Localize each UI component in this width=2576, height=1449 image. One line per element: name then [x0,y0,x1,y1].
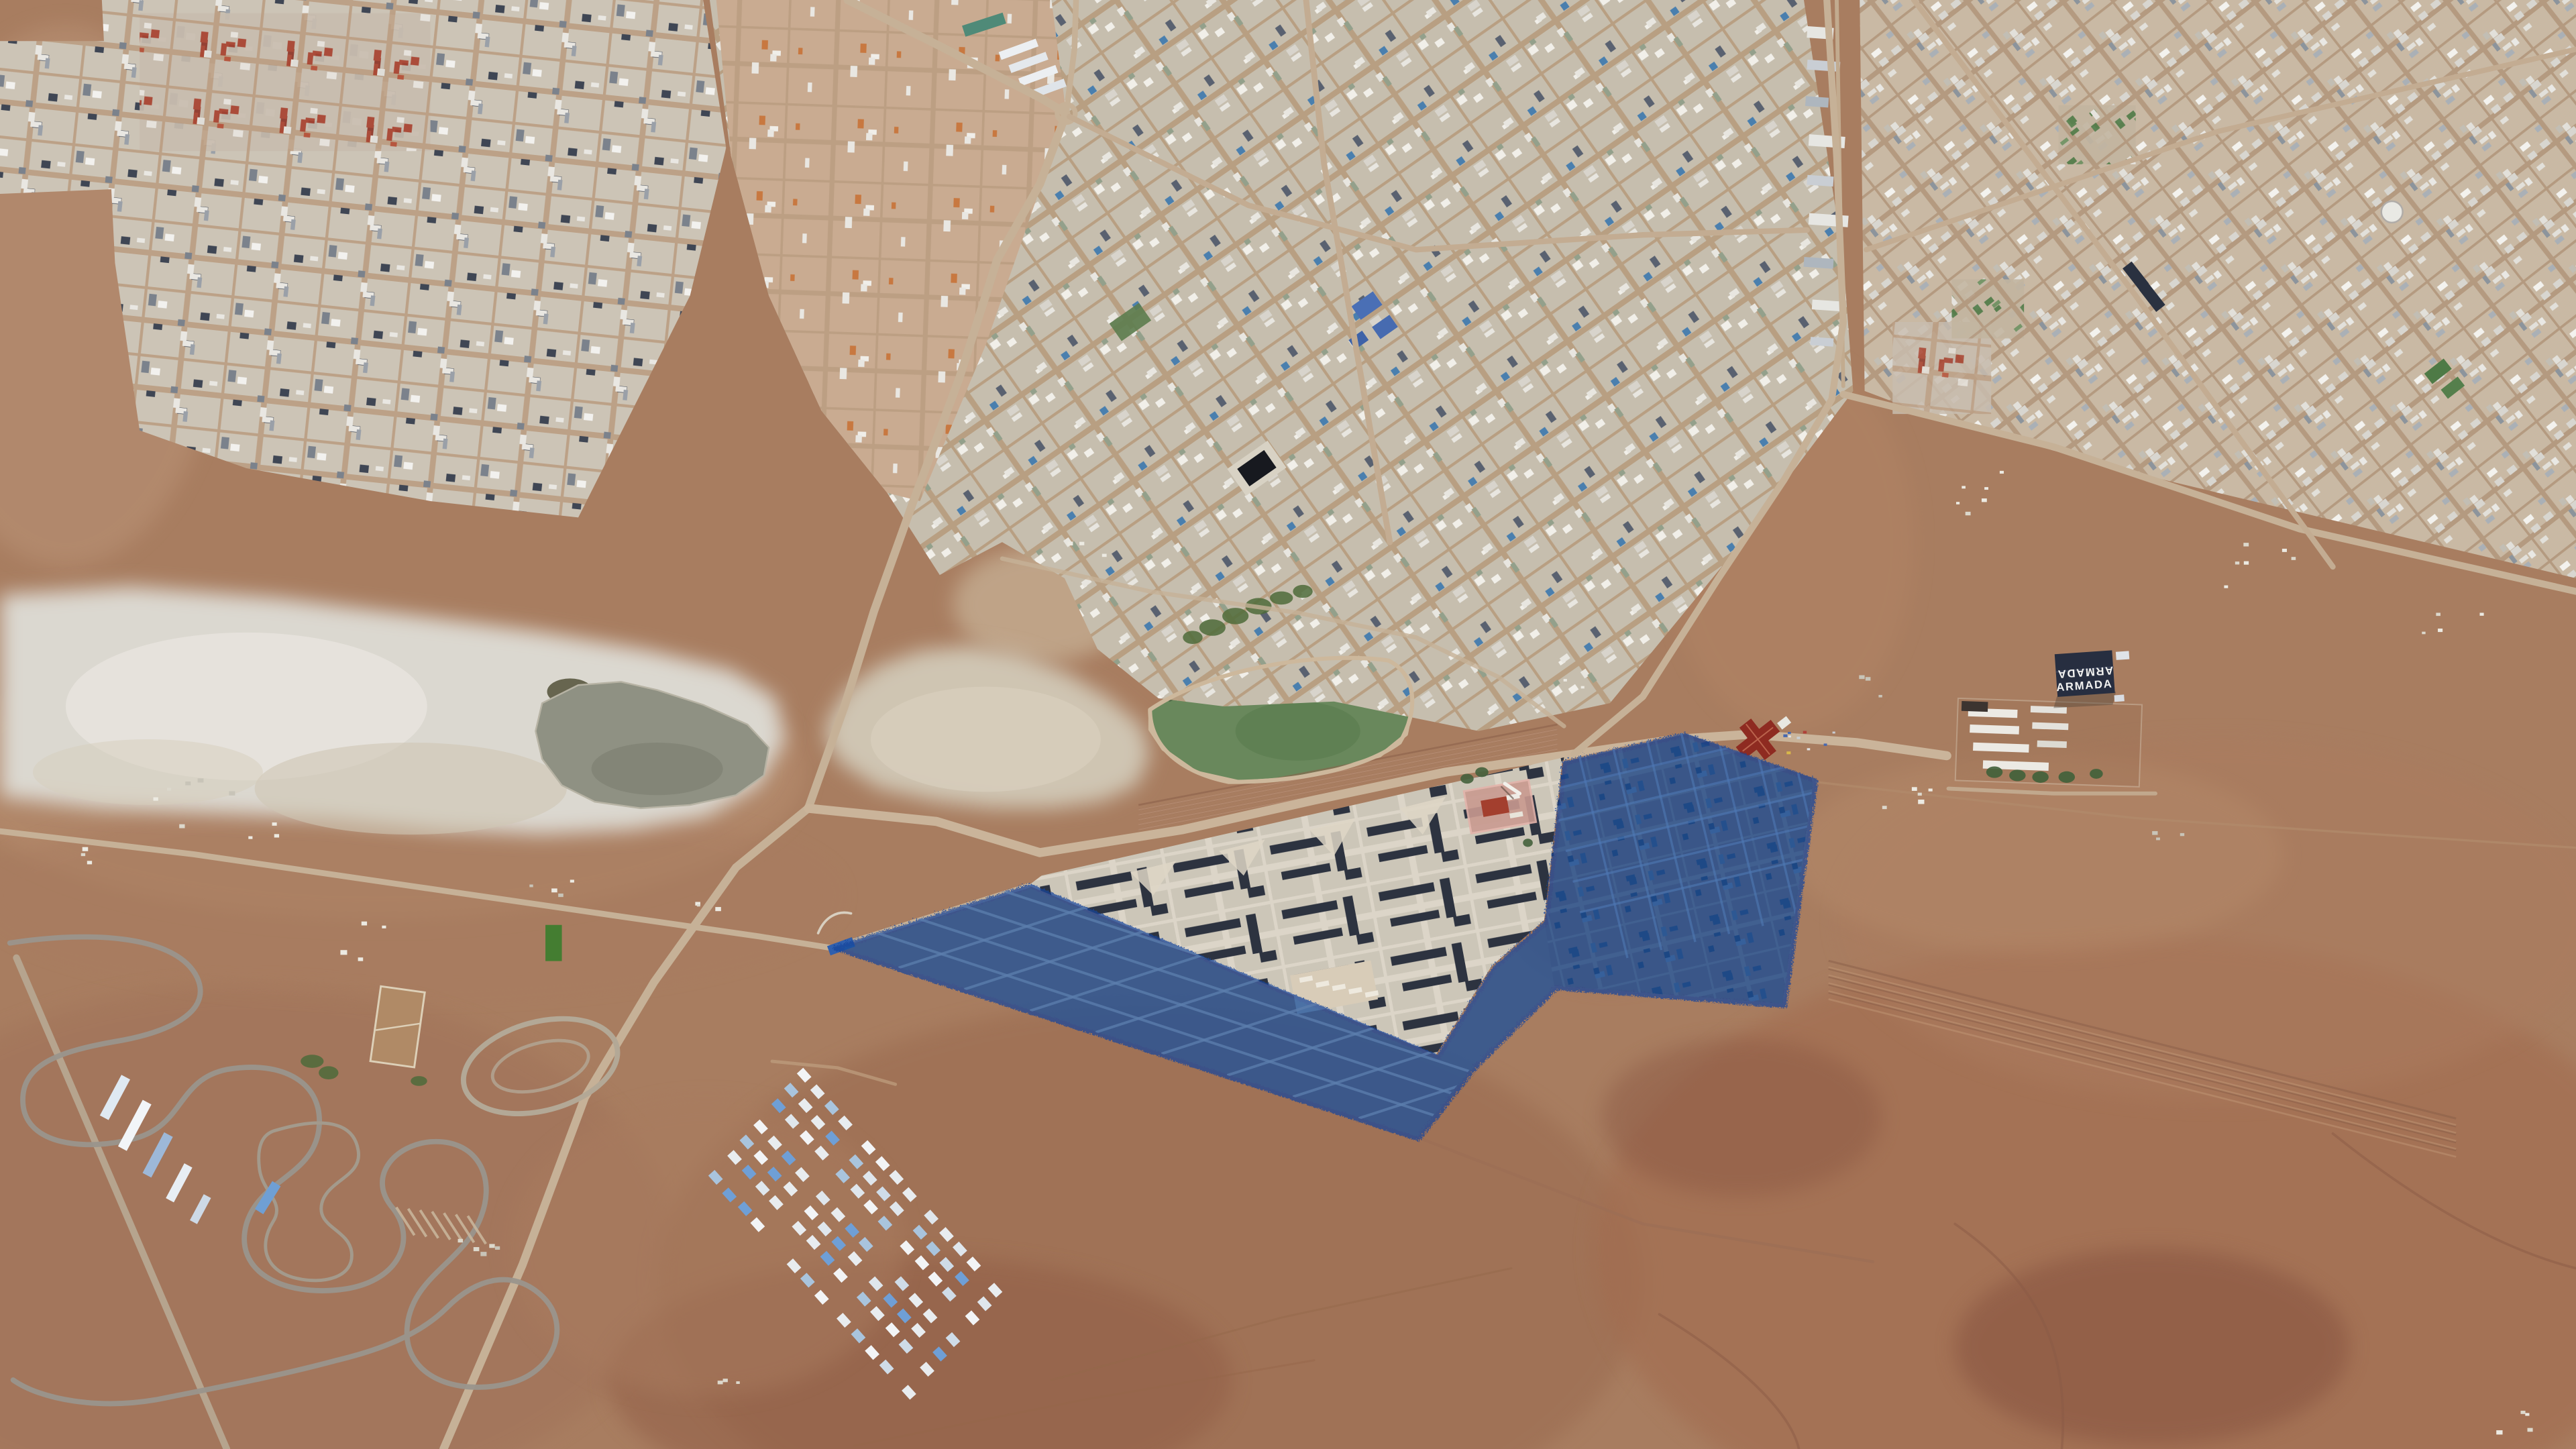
rect [2032,722,2068,731]
rect [1805,96,1829,107]
ell [411,1076,427,1086]
rect [1807,175,1833,186]
ell [1790,756,2284,953]
ell [255,743,567,835]
ell [871,687,1101,792]
ell [1602,1038,1881,1196]
satellite-image[interactable]: ARMADAARMADA [0,0,2576,1449]
water-tank [2381,201,2403,223]
ell [1183,631,1202,644]
rect [1970,724,2019,735]
satellite-map-stage: ARMADAARMADA [0,0,2576,1449]
ell [1222,608,1248,624]
dark-barn [1962,701,1988,712]
ell [2032,771,2048,783]
ell [2059,771,2075,783]
green-roof-cluster-1 [2059,105,2136,164]
ell [2009,769,2025,781]
ell [1523,839,1533,847]
suburb-patch [0,41,118,194]
rect [1810,337,1833,347]
rect [2037,741,2067,748]
ell [1293,585,1312,598]
ell [301,1055,323,1068]
ell [1460,773,1474,784]
ell [1199,619,1226,635]
rect [2114,694,2125,702]
ell [1986,766,2002,777]
green-field [545,925,561,961]
green-roof-cluster-2 [1951,279,2024,338]
red-roof-cluster-northwest [140,13,430,152]
ell [1475,767,1489,777]
ell [592,743,723,795]
ell [1236,702,1360,761]
rect [1804,257,1834,269]
ell [319,1066,338,1079]
rect [2116,651,2129,660]
ell [1270,592,1293,605]
ell [2090,769,2103,779]
ell [33,739,263,805]
